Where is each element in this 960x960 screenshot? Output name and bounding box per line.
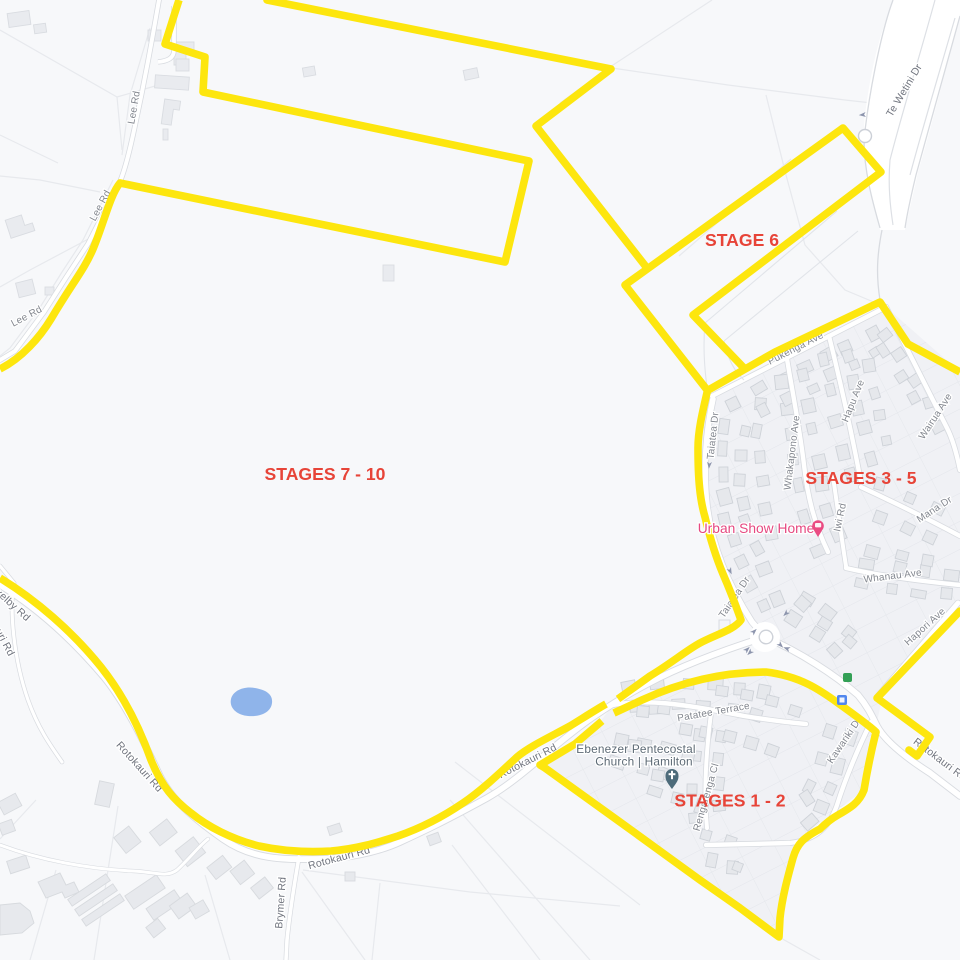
svg-text:STAGE 6: STAGE 6 — [705, 230, 779, 250]
svg-text:STAGES 7 - 10: STAGES 7 - 10 — [265, 464, 386, 484]
svg-text:Urban Show Home: Urban Show Home — [698, 521, 815, 536]
svg-text:Church | Hamilton: Church | Hamilton — [595, 755, 693, 769]
svg-text:STAGES 1 - 2: STAGES 1 - 2 — [674, 791, 785, 811]
svg-text:STAGES 3 - 5: STAGES 3 - 5 — [805, 468, 916, 488]
